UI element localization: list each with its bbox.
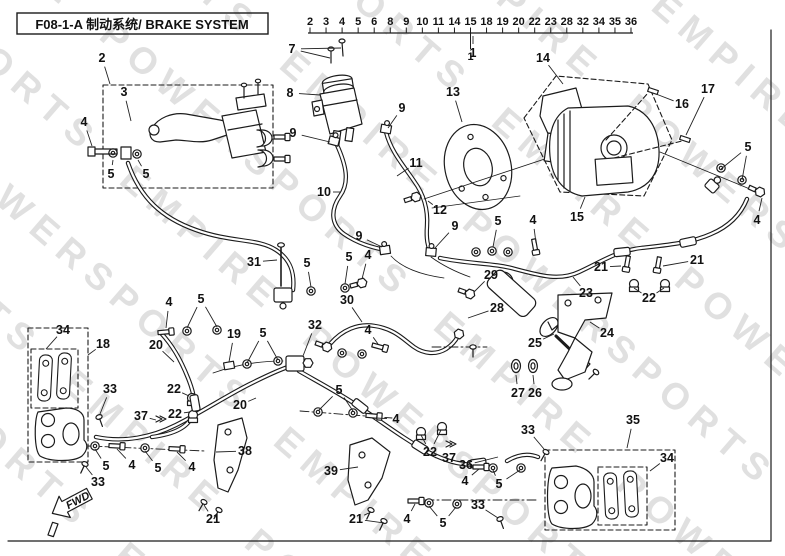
part-callout-39: 39 (324, 464, 338, 478)
part-callout-7: 7 (289, 42, 296, 56)
part-callout-24: 24 (600, 326, 614, 340)
callout-leader (411, 504, 415, 511)
part-callout-10: 10 (317, 185, 331, 199)
part-callout-33: 33 (91, 475, 105, 489)
part-callout-9: 9 (356, 229, 363, 243)
callout-leader (302, 135, 330, 142)
callout-leader (429, 506, 437, 516)
callout-leader (88, 349, 96, 355)
callout-leader (229, 343, 232, 362)
index-number: 32 (577, 16, 589, 28)
callout-leader (376, 418, 387, 419)
part-callout-5: 5 (198, 292, 205, 306)
part-callout-23: 23 (579, 286, 593, 300)
callout-leader (247, 341, 259, 363)
part-callout-2: 2 (99, 51, 106, 65)
watermark: POWERSPORTS EMPIRE POWERSPORTS EMPIREEMP… (0, 0, 785, 556)
part-callout-18: 18 (96, 337, 110, 351)
index-number: 19 (496, 16, 508, 28)
part-callout-22: 22 (168, 407, 182, 421)
callout-leader (267, 341, 278, 360)
part-callout-31: 31 (247, 255, 261, 269)
callout-leader (308, 272, 311, 287)
part-callout-11: 11 (409, 156, 422, 170)
callout-leader (205, 307, 217, 327)
part-callout-8: 8 (287, 86, 294, 100)
title-block: F08-1-A 制动系统/ BRAKE SYSTEM (17, 13, 268, 34)
part-callout-21: 21 (206, 512, 220, 526)
part-callout-38: 38 (238, 444, 252, 458)
index-number: 6 (371, 16, 377, 28)
part-callout-4: 4 (530, 213, 537, 227)
part-callout-4: 4 (129, 458, 136, 472)
part-callout-1: 1 (470, 46, 477, 60)
part-callout-37: 37 (442, 451, 456, 465)
index-number: 23 (545, 16, 557, 28)
callout-leader (182, 393, 189, 396)
part-callout-20: 20 (149, 338, 163, 352)
callout-leader (263, 260, 277, 261)
part-callout-34: 34 (660, 451, 674, 465)
part-callout-22: 22 (642, 291, 656, 305)
part-callout-4: 4 (365, 323, 372, 337)
index-number: 8 (387, 16, 393, 28)
part-callout-30: 30 (340, 293, 354, 307)
part-callout-27: 27 (511, 386, 525, 400)
part-callout-13: 13 (446, 85, 460, 99)
part-callout-3: 3 (121, 85, 128, 99)
part-callout-5: 5 (346, 250, 353, 264)
callout-leader (650, 463, 660, 471)
part-callout-21: 21 (690, 253, 704, 267)
part-callout-19: 19 (227, 327, 241, 341)
index-number: 20 (513, 16, 525, 28)
callout-leader (435, 233, 449, 248)
callout-leader (449, 507, 456, 516)
callout-leader (150, 418, 156, 420)
part-callout-37: 37 (134, 409, 148, 423)
index-number: 11 (433, 16, 445, 28)
callout-leader (534, 437, 544, 449)
index-number: 35 (609, 16, 621, 28)
part-callout-5: 5 (155, 461, 162, 475)
part-callout-4: 4 (365, 248, 372, 262)
index-number: 15 (464, 16, 476, 28)
index-number: 5 (355, 16, 361, 28)
index-number: 14 (448, 16, 461, 28)
part-callout-12: 12 (433, 203, 447, 217)
part-callout-15: 15 (570, 210, 584, 224)
part-callout-36: 36 (459, 458, 473, 472)
part-callout-4: 4 (462, 474, 469, 488)
callout-leader (319, 396, 333, 410)
part-callout-5: 5 (496, 477, 503, 491)
part-callout-29: 29 (484, 268, 498, 282)
callout-leader (627, 429, 631, 448)
callout-leader (126, 101, 131, 121)
part-callout-4: 4 (81, 115, 88, 129)
part-callout-9: 9 (290, 126, 297, 140)
part-callout-32: 32 (308, 318, 322, 332)
part-callout-33: 33 (103, 382, 117, 396)
part-callout-5: 5 (143, 167, 150, 181)
index-number: 2 (307, 16, 313, 28)
callout-leader (506, 470, 520, 479)
part-callout-5: 5 (745, 140, 752, 154)
part-callout-4: 4 (166, 295, 173, 309)
page-title: F08-1-A 制动系统/ BRAKE SYSTEM (35, 17, 248, 32)
part-callout-22: 22 (423, 445, 437, 459)
part-callout-20: 20 (233, 398, 247, 412)
part-callout-34: 34 (56, 323, 70, 337)
callout-leader (610, 266, 621, 267)
part-callout-9: 9 (452, 219, 459, 233)
part-callout-21: 21 (349, 512, 363, 526)
part-callout-4: 4 (404, 512, 411, 526)
part-callout-22: 22 (167, 382, 181, 396)
part-callout-5: 5 (336, 383, 343, 397)
part-callout-5: 5 (108, 167, 115, 181)
callout-leader (95, 449, 101, 458)
part-callout-5: 5 (304, 256, 311, 270)
index-number: 9 (403, 16, 409, 28)
callout-leader (474, 281, 485, 292)
callout-leader (468, 311, 488, 318)
part-callout-5: 5 (260, 326, 267, 340)
index-number: 34 (593, 16, 606, 28)
part-callout-35: 35 (626, 413, 640, 427)
index-number: 28 (561, 16, 573, 28)
part-callout-25: 25 (528, 336, 542, 350)
part-callout-9: 9 (399, 101, 406, 115)
index-number: 3 (323, 16, 329, 28)
part-callout-4: 4 (754, 213, 761, 227)
index-number: 10 (416, 16, 428, 28)
part-callout-33: 33 (521, 423, 535, 437)
part-callout-28: 28 (490, 301, 504, 315)
parts-diagram-page: POWERSPORTS EMPIRE POWERSPORTS EMPIREEMP… (0, 0, 785, 556)
part-callout-33: 33 (471, 498, 485, 512)
index-number: 36 (625, 16, 637, 28)
callout-leader (187, 307, 197, 328)
part-callout-26: 26 (528, 386, 542, 400)
part-callout-5: 5 (495, 214, 502, 228)
callout-leader (352, 307, 362, 322)
part-callout-16: 16 (675, 97, 689, 111)
diagram-canvas: POWERSPORTS EMPIRE POWERSPORTS EMPIREEMP… (0, 0, 785, 556)
part-callout-17: 17 (701, 82, 715, 96)
part-callout-14: 14 (536, 51, 550, 65)
index-number: 22 (529, 16, 541, 28)
callout-leader (345, 266, 348, 284)
part-callout-5: 5 (103, 459, 110, 473)
callout-leader (105, 67, 110, 84)
part-callout-4: 4 (189, 460, 196, 474)
part-callout-21: 21 (594, 260, 608, 274)
index-number: 18 (480, 16, 492, 28)
callout-leader (86, 467, 92, 475)
part-callout-4: 4 (393, 412, 400, 426)
part-callout-5: 5 (440, 516, 447, 530)
index-number: 4 (339, 16, 346, 28)
